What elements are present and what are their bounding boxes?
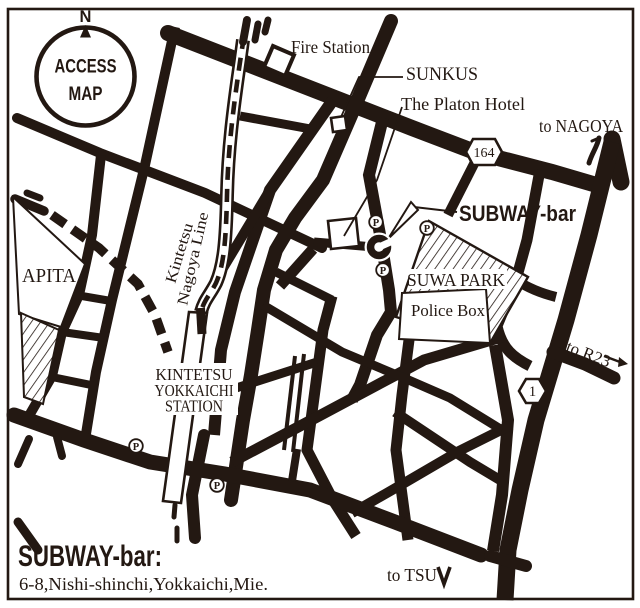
svg-text:P: P — [133, 442, 140, 453]
svg-text:P: P — [373, 218, 380, 229]
svg-text:Police Box: Police Box — [411, 301, 486, 320]
svg-text:6-8,Nishi-shinchi,Yokkaichi,Mi: 6-8,Nishi-shinchi,Yokkaichi,Mie. — [19, 574, 268, 594]
svg-text:Fire Station: Fire Station — [291, 37, 370, 57]
svg-text:SUWA PARK: SUWA PARK — [407, 270, 505, 290]
svg-text:P: P — [214, 481, 221, 492]
svg-text:N: N — [80, 8, 92, 26]
svg-text:P: P — [424, 224, 431, 235]
svg-text:ACCESS: ACCESS — [55, 56, 117, 78]
svg-text:to TSU: to TSU — [387, 565, 437, 585]
svg-text:APITA: APITA — [22, 265, 77, 287]
svg-text:to NAGOYA: to NAGOYA — [539, 116, 623, 136]
svg-text:1: 1 — [529, 384, 537, 400]
svg-text:MAP: MAP — [69, 83, 103, 105]
svg-text:SUBWAY-bar: SUBWAY-bar — [459, 201, 576, 226]
svg-text:P: P — [380, 266, 387, 277]
svg-text:SUNKUS: SUNKUS — [406, 65, 478, 85]
svg-text:SUBWAY-bar:: SUBWAY-bar: — [18, 540, 162, 573]
svg-text:164: 164 — [474, 146, 495, 161]
svg-text:STATION: STATION — [165, 397, 223, 416]
svg-text:The Platon Hotel: The Platon Hotel — [401, 94, 525, 114]
